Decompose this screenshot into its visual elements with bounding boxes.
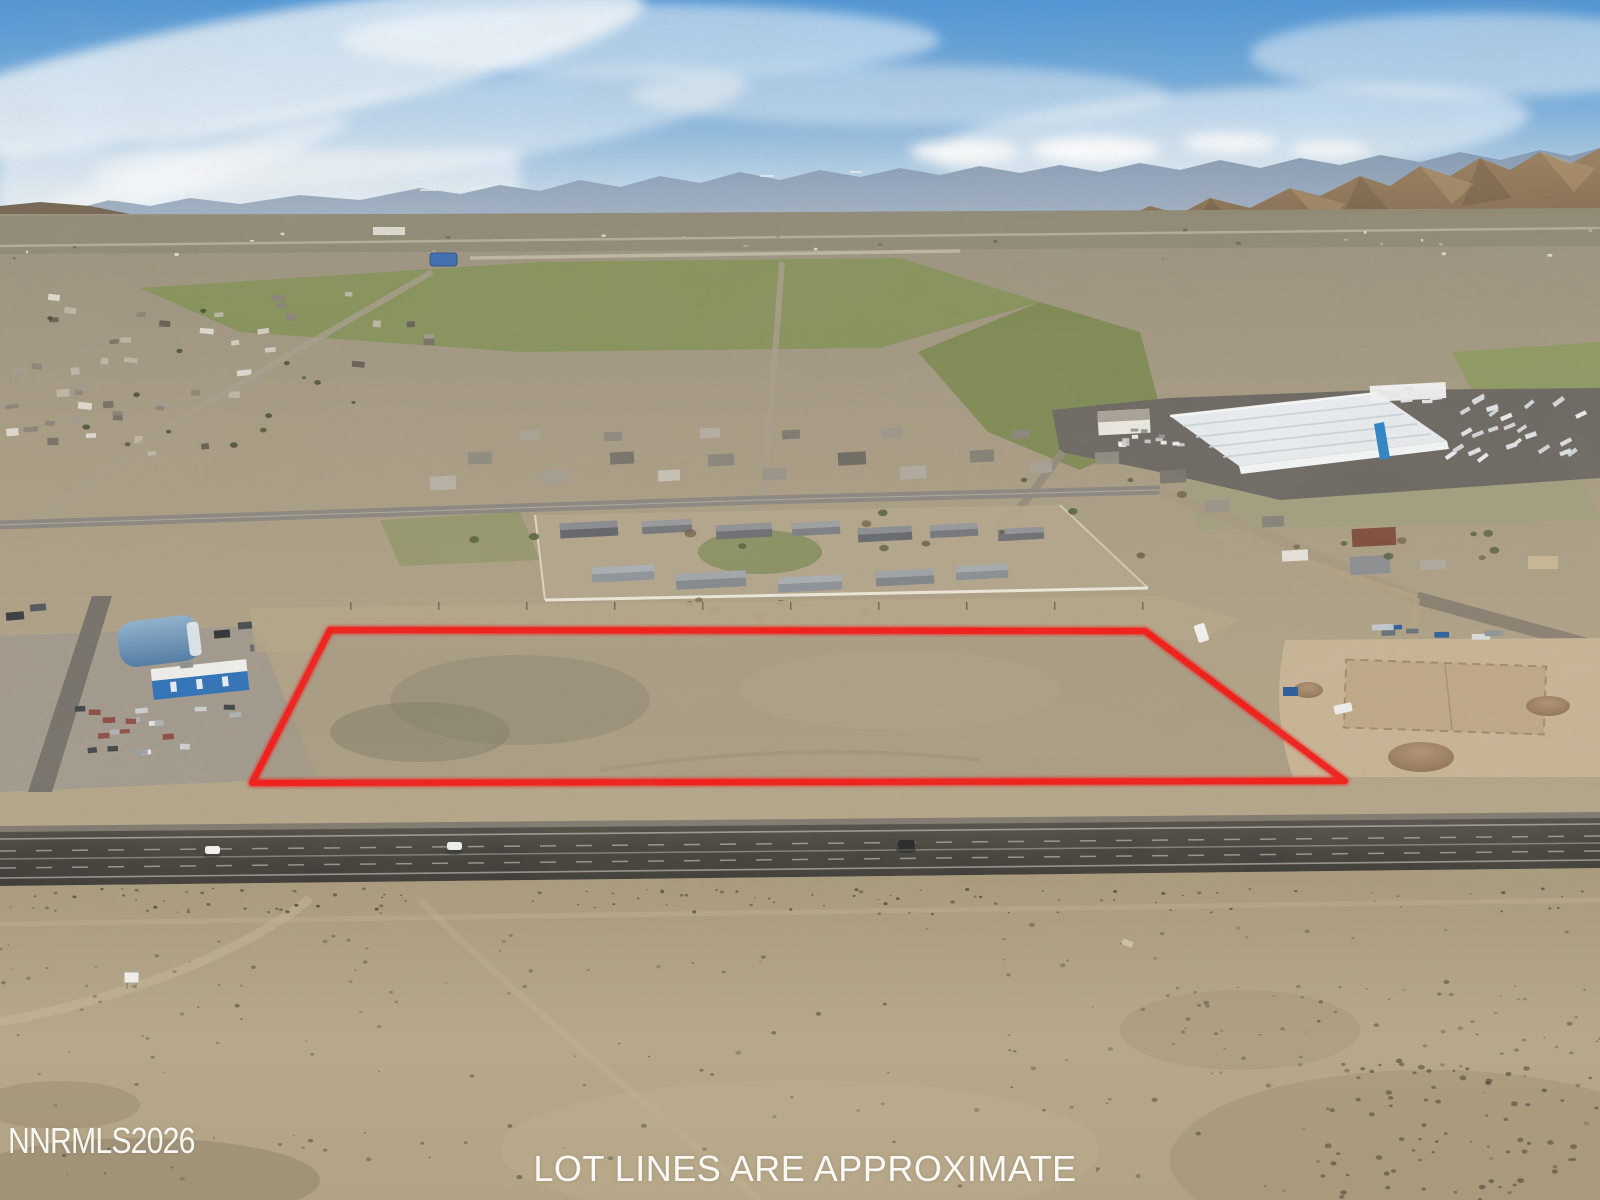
lot-lines-caption: LOT LINES ARE APPROXIMATE (533, 1148, 1076, 1190)
mls-watermark: NNRMLS2026 (8, 1120, 195, 1162)
aerial-photo: NNRMLS2026 LOT LINES ARE APPROXIMATE (0, 0, 1600, 1200)
photo-scene (0, 0, 1600, 1200)
texture-grain (0, 212, 1600, 1200)
